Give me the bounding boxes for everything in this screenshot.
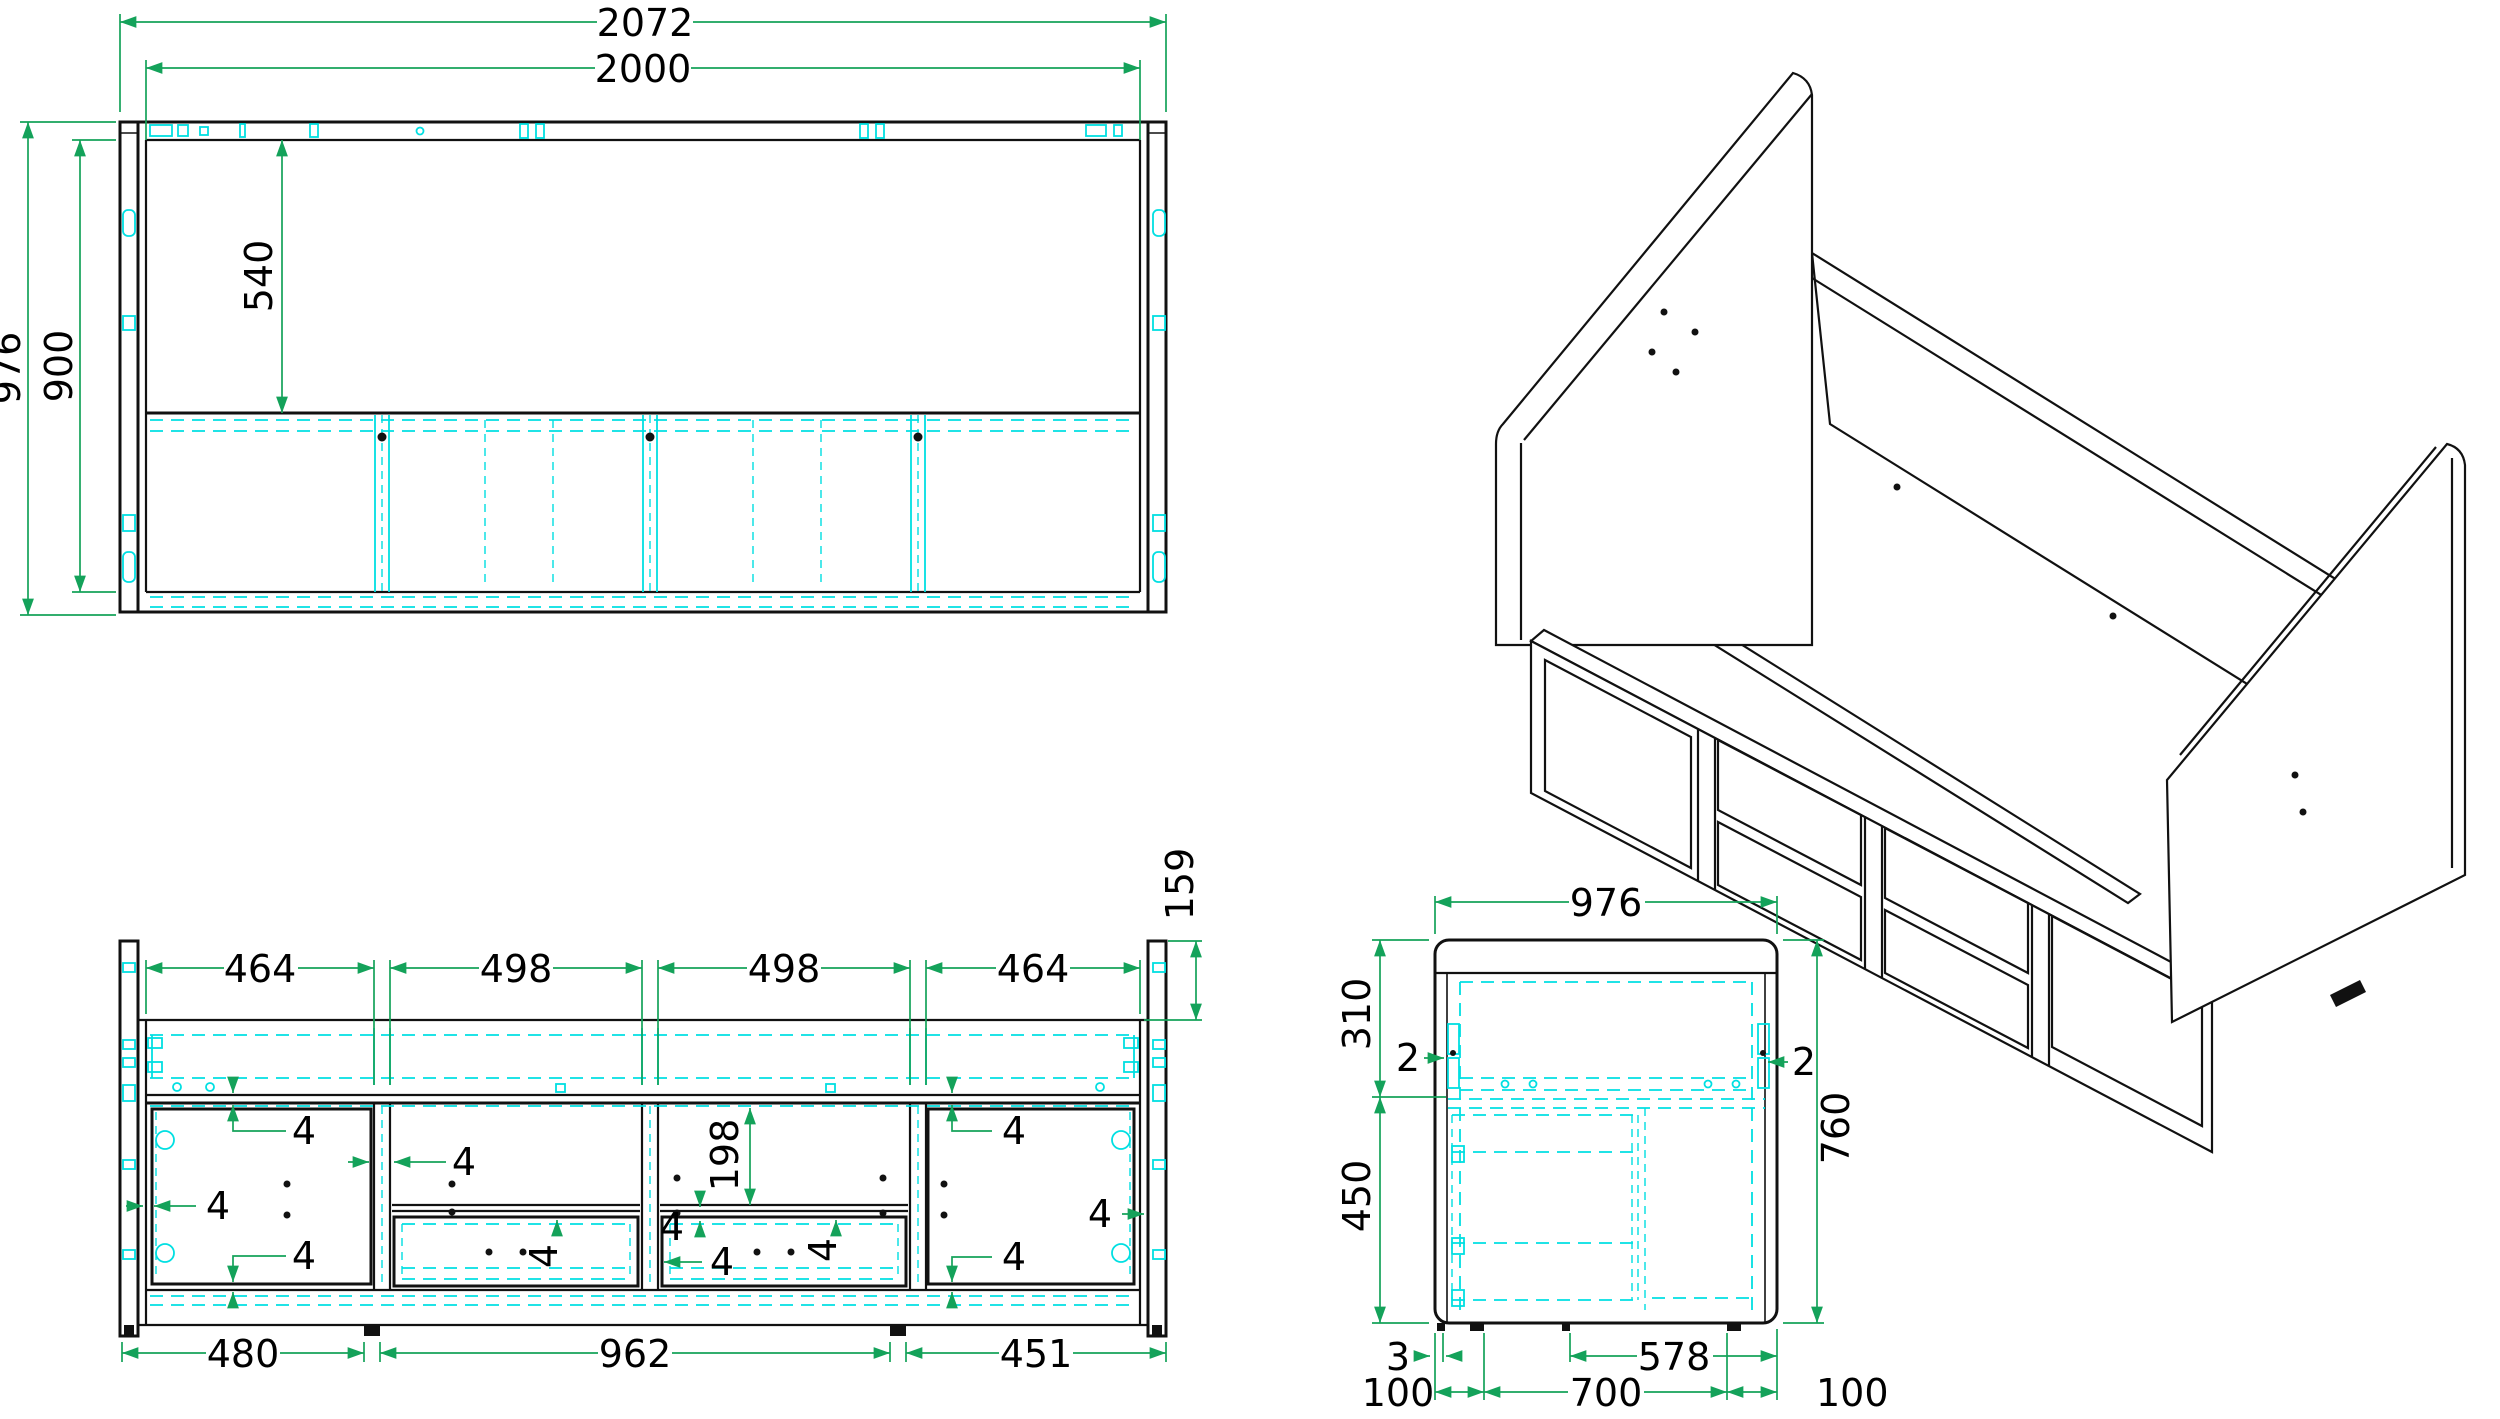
gap-label: 4 [452, 1140, 476, 1184]
rear-elevation-view: 464 498 498 464 159 198 480 [120, 848, 1202, 1376]
gap-label: 4 [292, 1109, 316, 1153]
gap-label: 4 [801, 1238, 845, 1262]
front-dividers [375, 415, 925, 592]
gap-label: 4 [206, 1184, 230, 1228]
cad-drawing-sheet: 2072 2000 976 900 540 [0, 0, 2500, 1419]
dim-gap-left: 2 [1396, 1036, 1420, 1080]
dim-bottom-left: 480 [207, 1332, 280, 1376]
front-elevation-view: 2072 2000 976 900 540 [0, 1, 1166, 615]
dim-offset-left: 100 [1362, 1371, 1435, 1415]
dim-section-1: 464 [224, 947, 297, 991]
isometric-view [1496, 73, 2465, 1152]
gap-label: 4 [660, 1205, 684, 1249]
gap-label: 4 [522, 1244, 566, 1268]
dim-bottom-right: 451 [1000, 1332, 1073, 1376]
gap-label: 4 [292, 1234, 316, 1278]
dim-upper-height: 310 [1335, 978, 1379, 1051]
side-hidden-lines [1448, 982, 1769, 1310]
gap-label: 4 [1002, 1235, 1026, 1279]
dim-depth: 976 [1570, 881, 1643, 925]
dim-section-3: 498 [748, 947, 821, 991]
dim-cubby-height: 198 [703, 1119, 747, 1192]
dim-rail-to-shelf: 540 [237, 240, 281, 313]
dim-overall-height: 976 [0, 332, 29, 405]
dim-foot-spacing: 700 [1570, 1371, 1643, 1415]
dim-overall-width: 2072 [597, 1, 694, 45]
dim-inner-width: 2000 [595, 47, 692, 91]
front-dimensions: 2072 2000 976 900 540 [0, 1, 1166, 615]
side-structure [1435, 940, 1777, 1331]
dim-post-top: 159 [1158, 848, 1202, 921]
side-drawer-hidden [1452, 1115, 1638, 1306]
front-hidden-lines [123, 124, 1165, 607]
bed-technical-drawing: 2072 2000 976 900 540 [0, 0, 2500, 1419]
side-section-view: 976 310 450 760 2 2 3 [1335, 881, 1889, 1415]
iso-headboard [1496, 73, 1812, 645]
dim-drawer-depth: 578 [1638, 1335, 1711, 1379]
dim-inner-height: 900 [37, 330, 81, 403]
dim-bottom-middle: 962 [599, 1332, 672, 1376]
dim-section-2: 498 [480, 947, 553, 991]
gap-label: 4 [710, 1240, 734, 1284]
dim-offset-right: 100 [1816, 1371, 1889, 1415]
side-dimensions: 976 310 450 760 2 2 3 [1335, 881, 1889, 1415]
rear-gap-callouts: 4 4 4 4 4 4 4 4 [126, 1082, 1144, 1302]
dim-section-4: 464 [997, 947, 1070, 991]
dim-lower-height: 450 [1335, 1160, 1379, 1233]
iso-foot [2330, 980, 2366, 1007]
gap-label: 4 [1088, 1192, 1112, 1236]
dim-total-height: 760 [1814, 1092, 1858, 1165]
dim-gap-right: 2 [1792, 1040, 1816, 1084]
gap-label: 4 [1002, 1109, 1026, 1153]
